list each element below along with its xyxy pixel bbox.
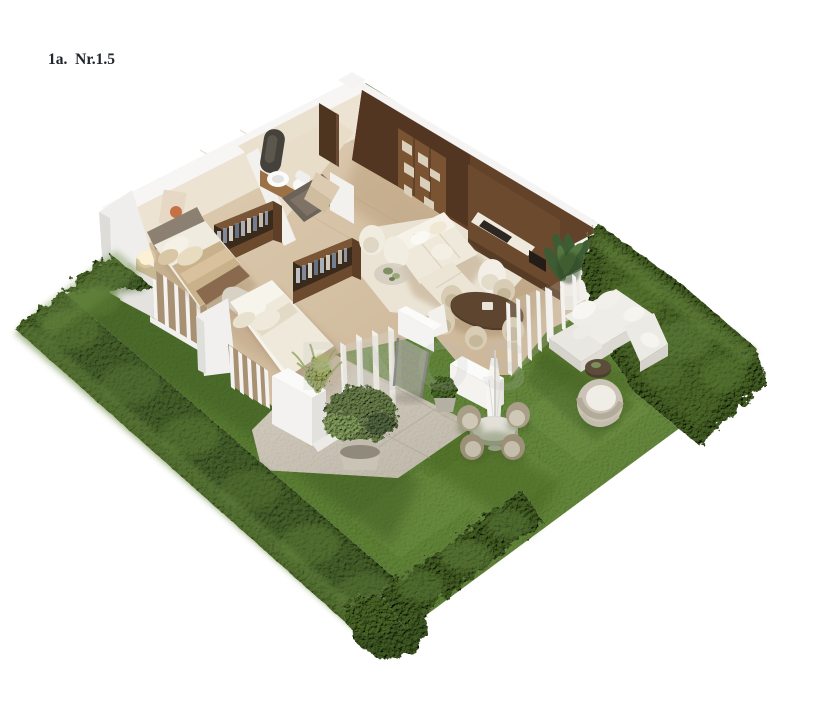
svg-text:ENOS: ENOS bbox=[299, 327, 537, 405]
svg-text:1a. Nr.1.5: 1a. Nr.1.5 bbox=[48, 51, 115, 68]
